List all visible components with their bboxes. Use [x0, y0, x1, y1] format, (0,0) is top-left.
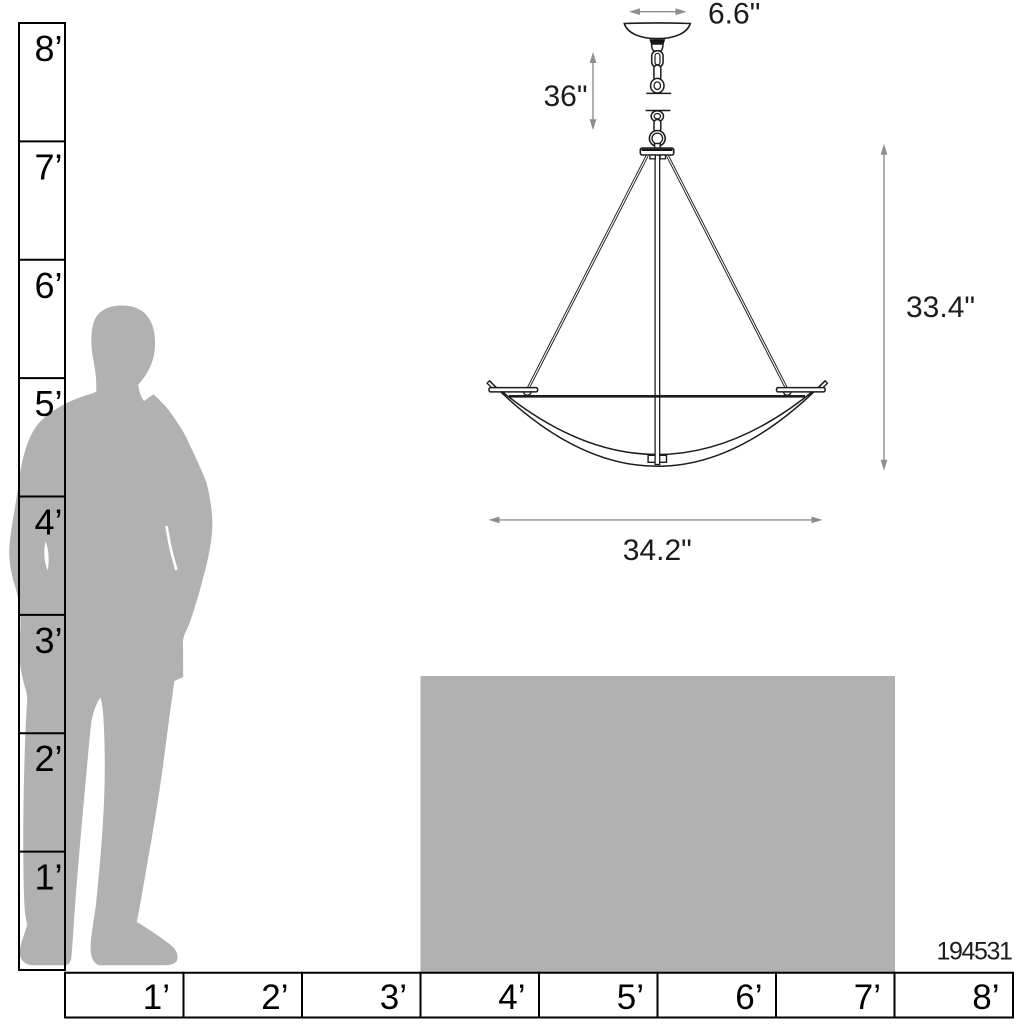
svg-text:194531: 194531 [936, 938, 1012, 966]
svg-text:1’: 1’ [34, 857, 62, 898]
svg-text:33.4": 33.4" [906, 291, 975, 324]
svg-text:7’: 7’ [854, 978, 881, 1017]
svg-text:6’: 6’ [735, 978, 762, 1017]
svg-text:3’: 3’ [34, 620, 62, 661]
svg-text:1’: 1’ [143, 978, 170, 1017]
svg-text:5’: 5’ [34, 383, 62, 424]
svg-text:6’: 6’ [34, 265, 62, 306]
svg-text:8’: 8’ [972, 978, 999, 1017]
svg-text:6.6": 6.6" [708, 0, 760, 30]
svg-text:34.2": 34.2" [623, 534, 692, 567]
svg-text:5’: 5’ [617, 978, 644, 1017]
svg-text:4’: 4’ [498, 978, 525, 1017]
svg-text:8’: 8’ [34, 28, 62, 69]
svg-text:2’: 2’ [34, 738, 62, 779]
svg-text:7’: 7’ [34, 146, 62, 187]
svg-text:2’: 2’ [261, 978, 288, 1017]
svg-text:4’: 4’ [34, 502, 62, 543]
svg-text:3’: 3’ [380, 978, 407, 1017]
svg-text:36": 36" [543, 80, 587, 113]
